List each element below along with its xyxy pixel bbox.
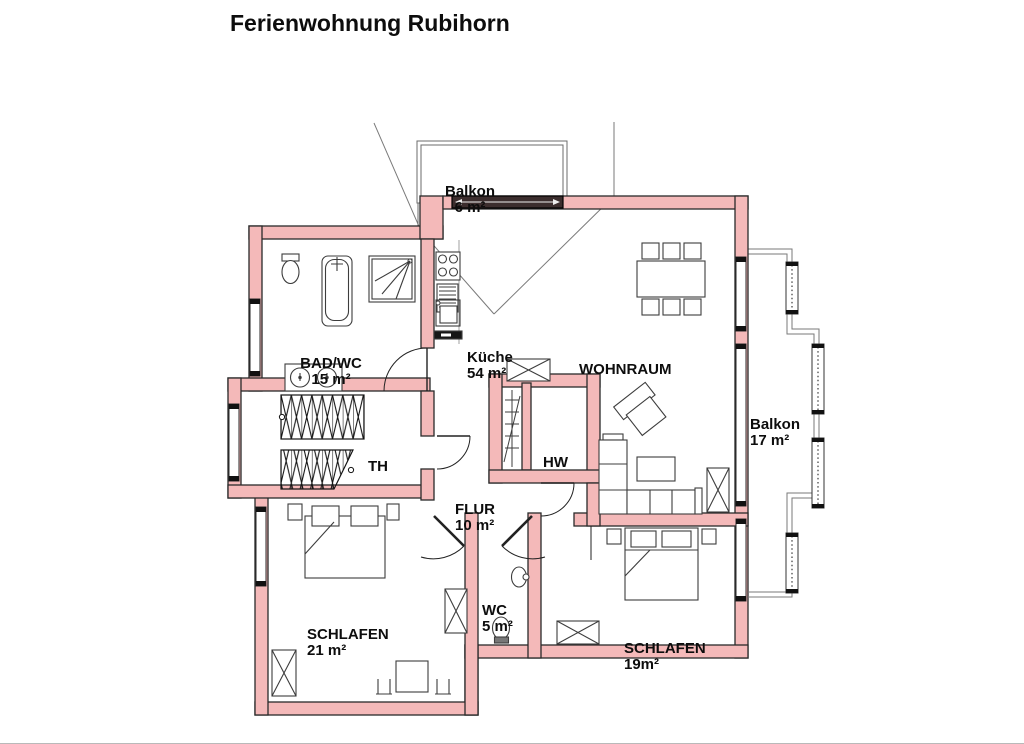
nightstand-icon [607,529,621,544]
room-label-hw: HW [543,423,568,487]
wardrobe-icon [445,589,467,633]
wardrobe-icon [707,468,729,512]
coffee-table-icon [637,457,675,481]
window-icon [256,507,266,586]
shower-icon [369,256,415,302]
bedroom-east-furniture [607,528,716,600]
window-icon [229,404,239,481]
wardrobe-icon [557,621,599,644]
room-label-balkon-nord: Balkon6 m² [428,152,512,232]
room-label-wohnraum: WOHNRAUM [579,330,671,394]
dining-set [637,243,705,315]
dining-table-icon [637,261,705,297]
stairs-icon [279,395,364,489]
bathtub-icon [322,256,352,326]
bed-icon [305,506,385,578]
kitchen-fixtures [434,240,462,344]
page-title: Ferienwohnung Rubihorn [230,10,510,37]
door-entrance [437,436,470,469]
wc-sink-icon [512,567,530,587]
room-label-schlafen-west: SCHLAFEN21 m² [307,595,389,675]
toilet-icon [282,254,299,284]
nightstand-icon [387,504,399,520]
window-icon [736,519,746,601]
wardrobe-icon [272,650,296,696]
stove-icon [436,252,460,280]
bed-icon [625,528,698,600]
window-icon [250,299,260,376]
living-room-furniture [599,382,702,514]
room-label-wc: WC5 m² [482,571,513,651]
room-label-kueche: Küche54 m² [467,318,513,398]
window-icon [736,257,746,331]
room-label-flur: FLUR10 m² [455,470,495,550]
shelf-icon [504,390,520,467]
nightstand-icon [702,529,716,544]
room-label-th: TH [368,427,388,491]
wardrobe-icon [507,359,550,381]
nightstand-icon [288,504,302,520]
room-label-balkon-ost: Balkon17 m² [750,385,800,465]
window-icon [736,344,746,506]
room-label-schlafen-ost: SCHLAFEN19m² [624,609,706,689]
room-label-bad-wc: BAD/WC15 m² [288,324,374,404]
floorplan-page: Ferienwohnung Rubihorn Balkon6 m² BAD/WC… [0,0,1024,744]
counter-end-icon [434,331,462,339]
